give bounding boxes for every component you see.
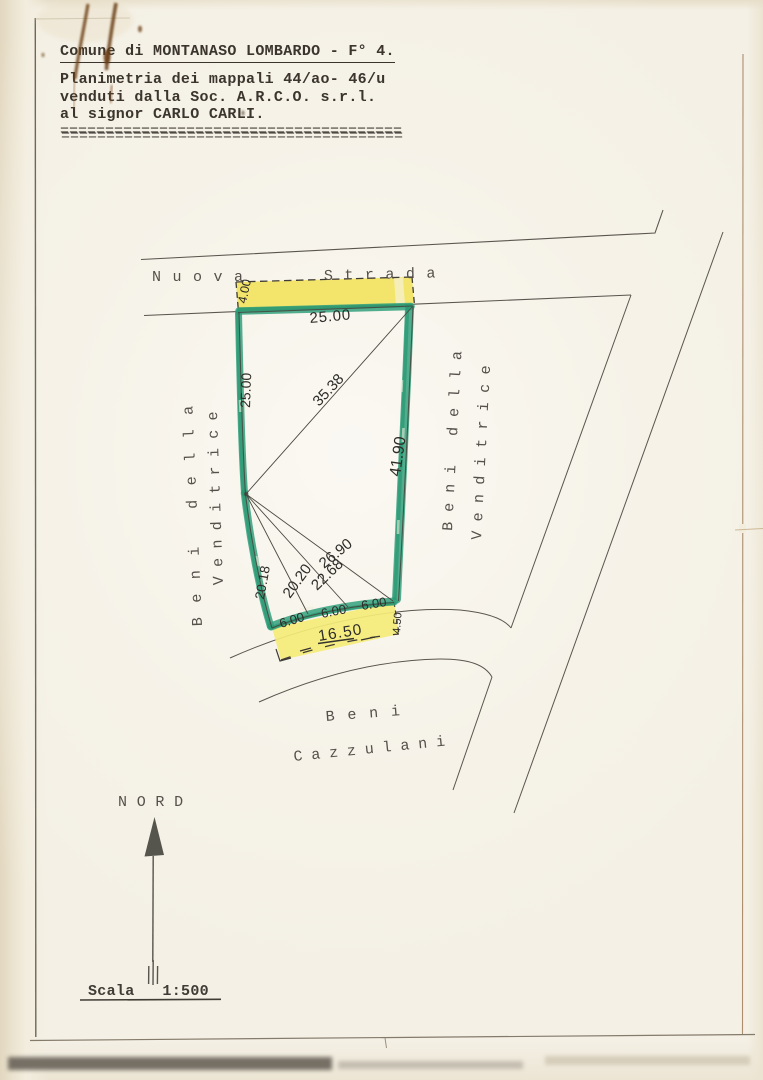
svg-text:35.38: 35.38 <box>309 371 347 410</box>
svg-text:25.00: 25.00 <box>237 372 254 408</box>
svg-text:Venditrice: Venditrice <box>205 402 228 585</box>
svg-text:Cazzulani: Cazzulani <box>293 733 455 766</box>
svg-text:Beni della: Beni della <box>440 341 467 532</box>
svg-text:4.50: 4.50 <box>391 612 404 634</box>
svg-text:Venditrice: Venditrice <box>469 356 496 541</box>
svg-text:NORD: NORD <box>118 794 193 811</box>
svg-text:Beni: Beni <box>325 702 413 726</box>
svg-text:Beni della: Beni della <box>180 391 207 627</box>
svg-text:25.00: 25.00 <box>309 306 352 327</box>
svg-text:Strada: Strada <box>324 265 447 285</box>
